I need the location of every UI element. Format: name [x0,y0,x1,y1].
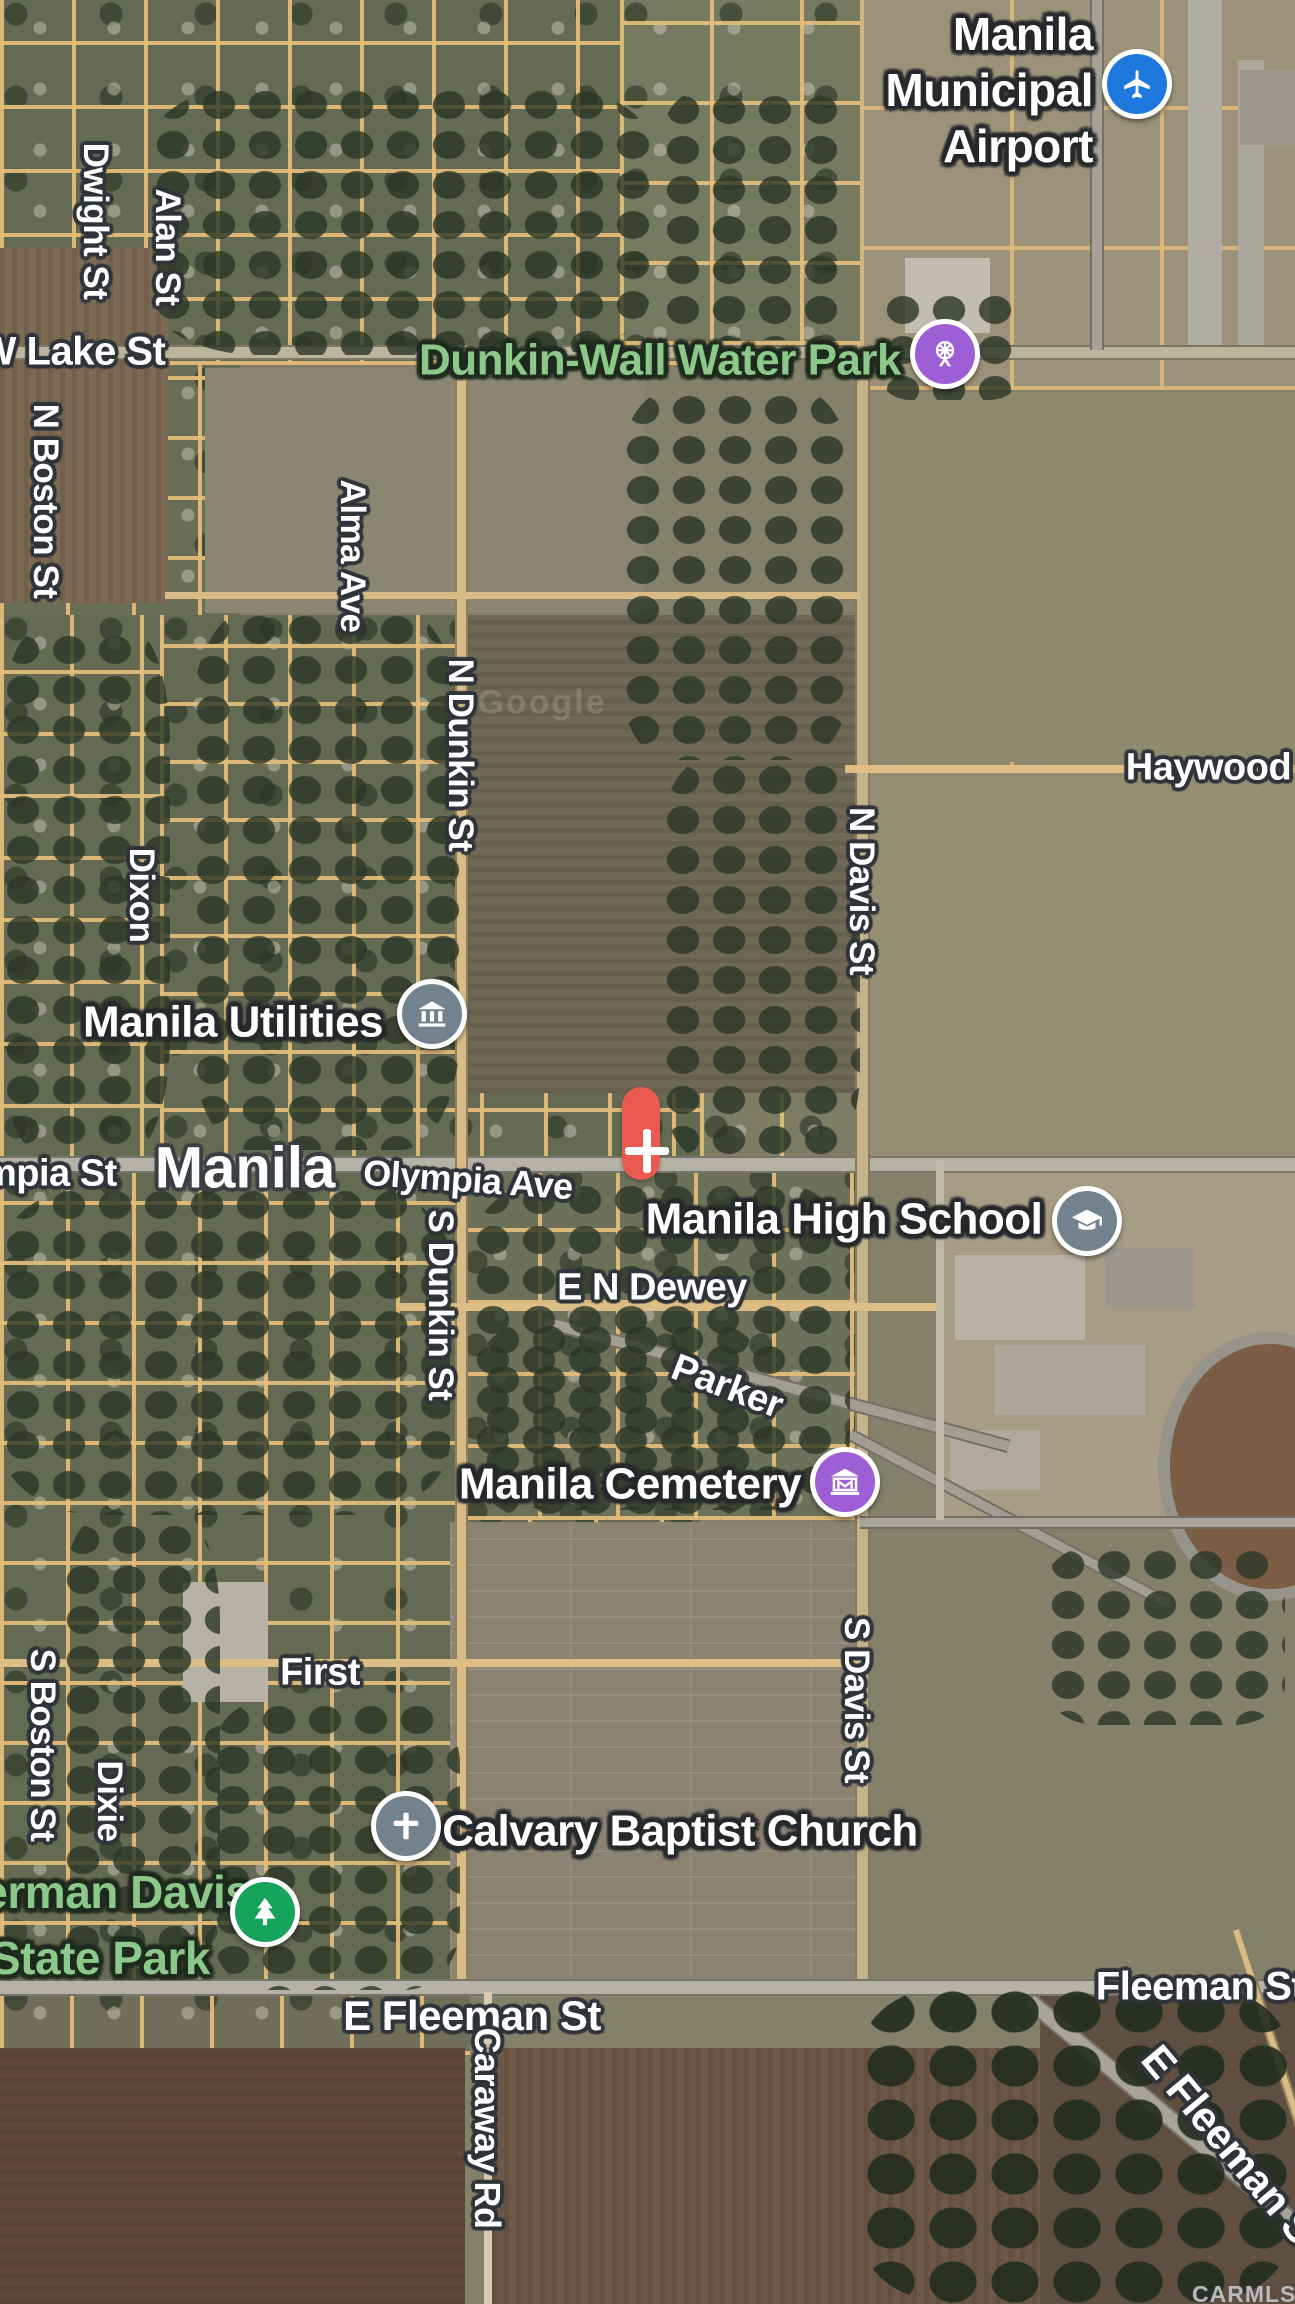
school-icon [1057,1191,1117,1251]
poi-pin-dunkin-wall-water-park[interactable] [910,319,980,389]
poi-label-calvary-baptist-church[interactable]: Calvary Baptist Church [442,1806,918,1859]
selected-location-marker[interactable] [622,1087,660,1180]
map-feature [415,997,449,1031]
street-label-w-lake-st-2: W Lake St [0,330,165,375]
map-feature: Herman Davis [0,1860,250,1926]
map-feature [419,1023,445,1026]
map-feature: Manila High School [646,1194,1043,1247]
street-label-parker-12: Parker [665,1346,788,1427]
city-label: Manila [155,1135,336,1202]
map-feature [248,1895,282,1929]
poi-pin-manila-utilities[interactable] [397,979,467,1049]
map-feature [1072,1210,1102,1225]
satellite-map[interactable]: Google Dwight StAlan StW Lake StN Boston… [0,0,1295,2304]
poi-pin-herman-davis-state-park[interactable] [230,1877,300,1947]
street-label-s-davis-st-17: S Davis St [836,1617,876,1783]
poi-pin-manila-cemetery[interactable] [810,1447,880,1517]
map-feature [394,1821,419,1826]
poi-pin-manila-municipal-airport[interactable] [1102,49,1172,119]
map-feature [831,1469,859,1477]
poi-label-herman-davis-state-park[interactable]: Herman DavisState Park [0,1860,250,1992]
street-label-e-n-dewey-11: E N Dewey [557,1267,747,1310]
street-label-fleeman-st-19: Fleeman St [1096,1965,1295,2010]
poi-label-dunkin-wall-water-park[interactable]: Dunkin-Wall Water Park [419,335,901,388]
street-label-dwight-st-0: Dwight St [75,143,115,300]
street-label-n-dunkin-st-5: N Dunkin St [440,659,480,852]
map-feature: Municipal [885,62,1093,118]
poi-label-manila-high-school[interactable]: Manila High School [646,1194,1043,1247]
map-feature [831,1492,859,1495]
map-feature [1099,1217,1101,1226]
poi-pin-manila-high-school[interactable] [1052,1186,1122,1256]
map-feature [1124,70,1150,98]
street-label-dixie-16: Dixie [89,1760,129,1841]
utilities-icon [402,984,462,1044]
cemetery-icon [815,1452,875,1512]
poi-label-manila-utilities[interactable]: Manila Utilities [83,997,383,1050]
map-feature [430,1011,434,1021]
street-label-n-davis-st-7: N Davis St [841,807,881,975]
street-label-alma-ave-4: Alma Ave [332,480,372,633]
map-feature [1120,67,1154,101]
map-feature: Manila Utilities [83,997,383,1050]
street-label-alan-st-1: Alan St [147,188,187,305]
map-feature: Airport [885,118,1093,174]
airport-icon [1107,54,1167,114]
park-icon [235,1882,295,1942]
map-feature [255,1898,276,1919]
map-feature [438,1011,442,1021]
water-park-icon [915,324,975,384]
attribution-watermark: CARMLS, INC [1192,2281,1295,2304]
map-feature: State Park [0,1926,250,1992]
map-feature: Manila Cemetery [459,1459,801,1512]
street-label-n-boston-st-3: N Boston St [25,404,65,599]
map-feature [418,1001,445,1009]
poi-label-manila-municipal-airport[interactable]: ManilaMunicipalAirport [885,6,1093,174]
street-label-e-fleeman-st-20: E Fleeman St [1132,2036,1295,2264]
map-feature [1070,1204,1104,1238]
street-label-olympia-ave-10: Olympia Ave [362,1152,574,1209]
map-feature [942,347,948,353]
poi-pin-calvary-baptist-church[interactable] [371,1791,441,1861]
map-feature [422,1011,426,1021]
map-feature: Dunkin-Wall Water Park [419,335,901,388]
street-label-s-boston-st-15: S Boston St [22,1649,62,1842]
poi-label-manila-cemetery[interactable]: Manila Cemetery [459,1459,801,1512]
street-label-s-dunkin-st-13: S Dunkin St [420,1210,460,1401]
map-feature: Manila [885,6,1093,62]
street-label-dixon-6: Dixon [121,848,161,943]
street-label-first-14: First [280,1652,360,1695]
map-feature [838,1482,851,1489]
street-label-caraway-rd-21: Caraway Rd [466,2027,508,2228]
google-imagery-watermark: Google [477,684,606,723]
map-feature [828,1465,862,1499]
map-feature [389,1809,423,1843]
street-label-haywood-st-8: Haywood St [1126,747,1295,790]
map-feature [263,1919,267,1926]
map-feature [928,337,962,371]
marker-plus-vertical [643,1129,651,1173]
church-icon [376,1796,436,1856]
street-label-olympia-st-9: Olympia St [0,1153,117,1196]
map-feature: Calvary Baptist Church [442,1806,918,1859]
